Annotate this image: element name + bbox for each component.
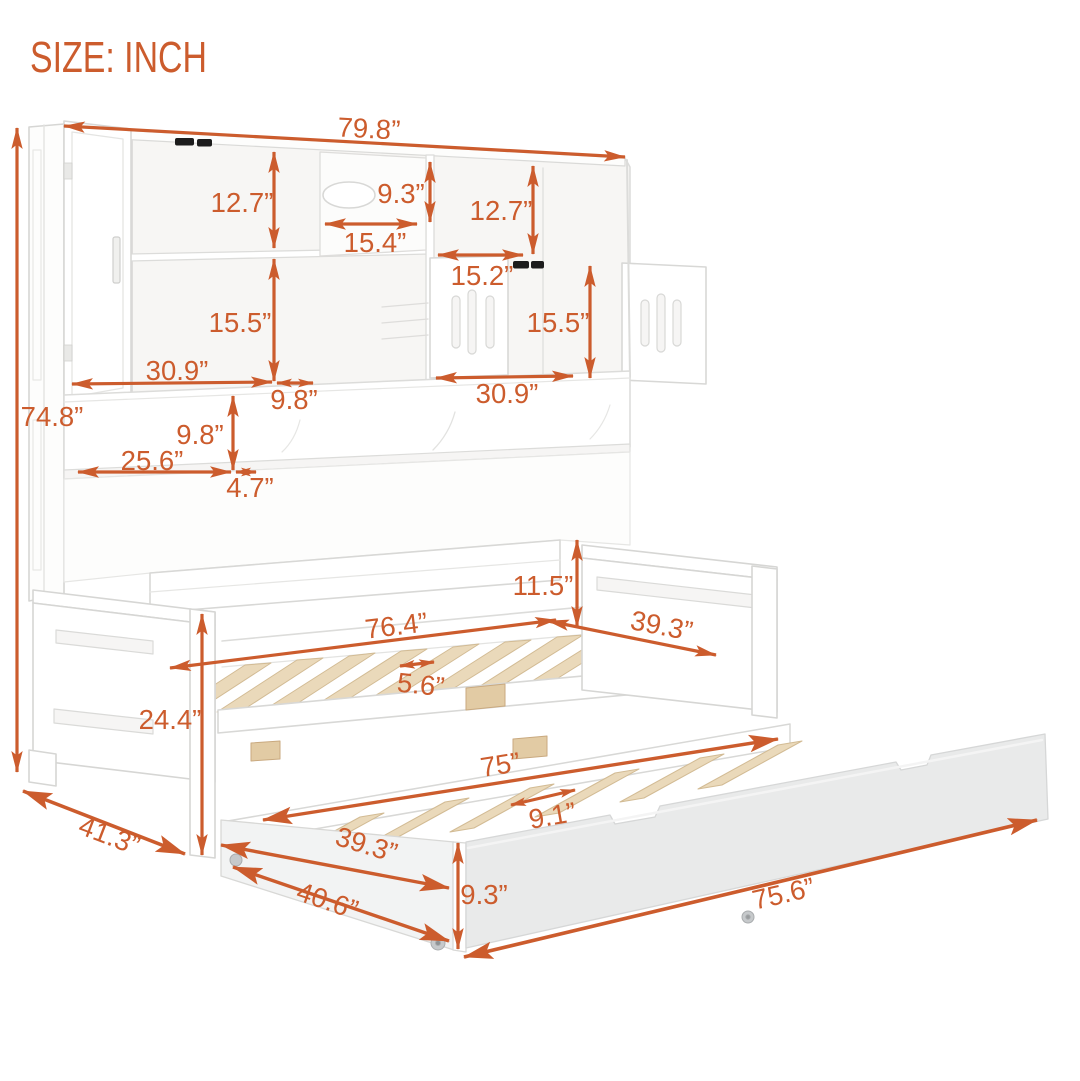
- svg-text:9.3”: 9.3”: [377, 178, 424, 209]
- svg-text:9.8”: 9.8”: [270, 384, 317, 415]
- svg-text:15.2”: 15.2”: [451, 260, 514, 291]
- svg-text:12.7”: 12.7”: [470, 195, 533, 226]
- svg-text:11.5”: 11.5”: [513, 570, 574, 601]
- svg-text:SIZE: INCH: SIZE: INCH: [30, 33, 207, 82]
- svg-text:5.6”: 5.6”: [396, 667, 446, 703]
- svg-text:15.4”: 15.4”: [344, 227, 407, 258]
- svg-text:24.4”: 24.4”: [139, 704, 202, 735]
- svg-text:25.6”: 25.6”: [121, 445, 184, 476]
- svg-text:79.8”: 79.8”: [337, 111, 401, 145]
- svg-text:75”: 75”: [478, 746, 522, 783]
- svg-text:9.8”: 9.8”: [176, 419, 223, 450]
- svg-text:9.3”: 9.3”: [460, 879, 507, 910]
- svg-text:74.8”: 74.8”: [21, 401, 84, 432]
- svg-text:30.9”: 30.9”: [146, 355, 209, 386]
- svg-text:4.7”: 4.7”: [226, 472, 273, 503]
- svg-text:15.5”: 15.5”: [527, 307, 590, 338]
- svg-text:30.9”: 30.9”: [476, 378, 539, 409]
- svg-text:12.7”: 12.7”: [211, 187, 274, 218]
- svg-text:15.5”: 15.5”: [209, 307, 272, 338]
